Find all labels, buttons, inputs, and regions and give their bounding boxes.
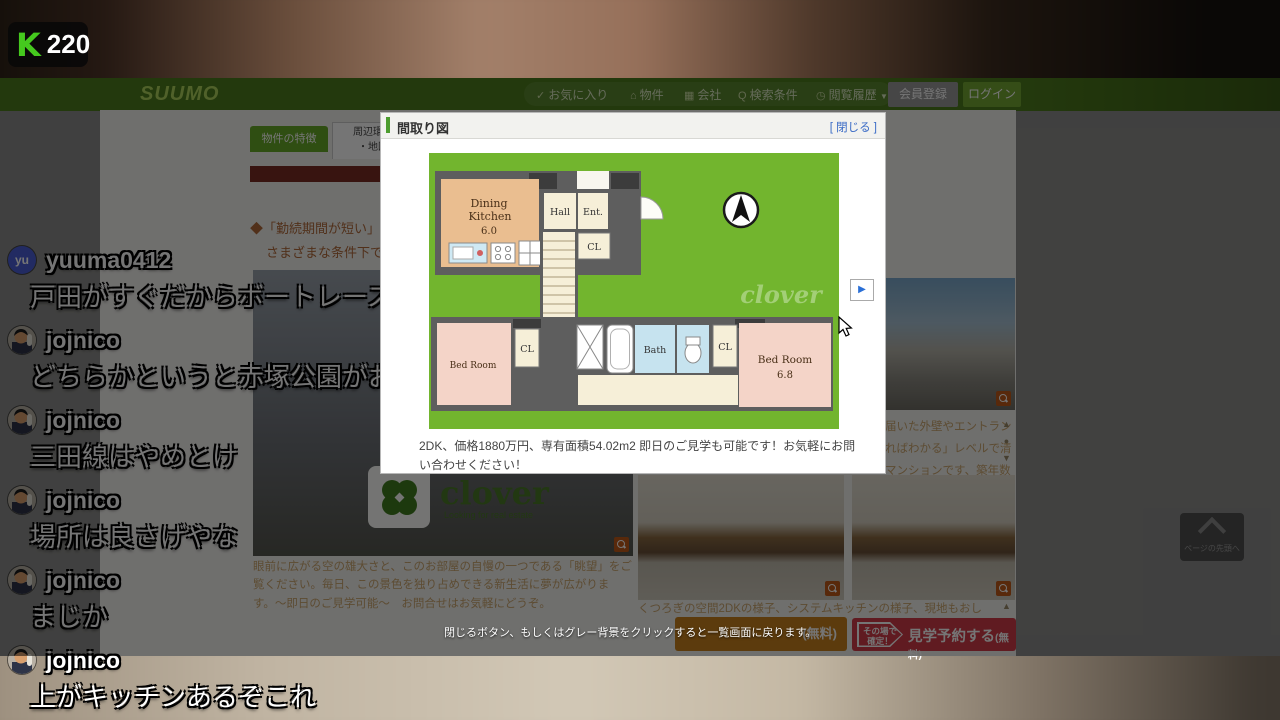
watermark: clover — [740, 280, 824, 309]
next-floorplan-button[interactable]: ▶ — [850, 279, 874, 301]
floorplan-image: Dining Kitchen 6.0 Hall Ent. CL CL Bath … — [429, 153, 839, 429]
modal-header: 間取り図 [ 閉じる ] — [381, 113, 885, 139]
label-bath: Bath — [644, 345, 667, 356]
mouse-cursor — [838, 316, 854, 343]
modal-title: 間取り図 — [397, 118, 449, 137]
label-bed-right-size: 6.8 — [777, 370, 793, 381]
chat-message: jojnico 上がキッチンあるぞこれ — [8, 646, 316, 714]
overlay-tip-text: 閉じるボタン、もしくはグレー背景をクリックすると一覧画面に戻ります。 — [444, 624, 816, 640]
label-cl-upper: CL — [587, 242, 601, 253]
stream-screen: SUUMO ✓お気に入り ⌂物件 ▦会社 Q検索条件 ◷閲覧履歴 ▼ 会員登録 … — [0, 0, 1280, 720]
label-cl-left: CL — [520, 344, 534, 355]
video-top-strip — [0, 0, 1280, 78]
label-hall: Hall — [550, 207, 570, 218]
viewer-count-badge: K 220 — [8, 22, 88, 67]
label-kitchen: Kitchen — [469, 210, 512, 223]
platform-logo-icon: K — [16, 26, 41, 64]
label-bed-right: Bed Room — [758, 354, 813, 366]
chat-text: 上がキッチンあるぞこれ — [30, 677, 316, 714]
accent-bar — [386, 117, 390, 133]
label-dining: Dining — [470, 197, 507, 210]
close-link[interactable]: [ 閉じる ] — [830, 119, 877, 135]
floorplan-caption: 2DK、価格1880万円、専有面積54.02m2 即日のご見学も可能です！お気軽… — [419, 437, 857, 474]
label-dk-size: 6.0 — [481, 226, 497, 237]
floorplan-modal: 間取り図 [ 閉じる ] — [380, 112, 886, 474]
label-ent: Ent. — [583, 207, 603, 218]
viewer-count: 220 — [47, 29, 90, 60]
label-cl-right: CL — [718, 342, 732, 353]
label-bed-left: Bed Room — [450, 361, 497, 371]
